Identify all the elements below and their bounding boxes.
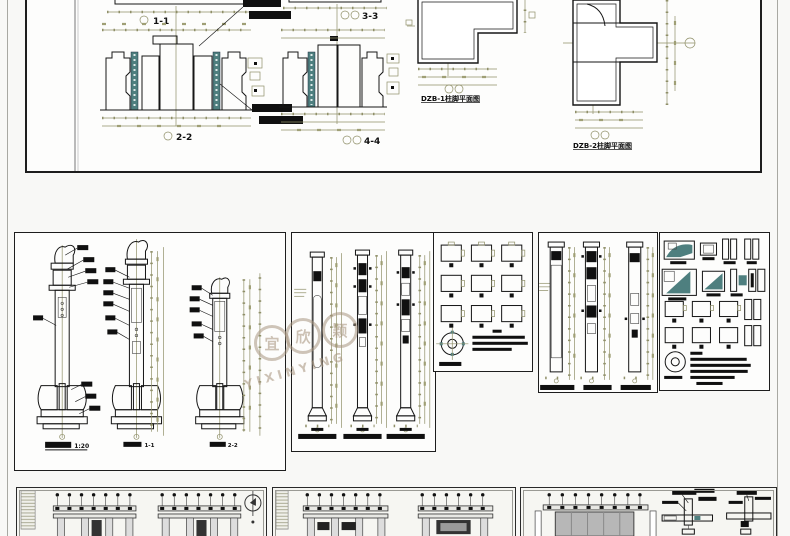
section-3-3-label: 3-3 [362,12,378,22]
top-sheet-drawing: 1-1 3-3 [27,0,760,171]
detail-column-3 [387,250,430,439]
section-4-4-label: 4-4 [364,137,380,147]
panel-section-grid [433,232,533,372]
section-3-3: 3-3 [283,0,387,22]
annotated-detail-1 [662,489,716,534]
section-1-1: 1-1 [107,0,253,27]
elevation-label-1: 1-1 [144,443,154,449]
elevation-fragment-3 [297,493,394,536]
elevation-label-2: 2-2 [228,443,238,449]
annotated-detail-2 [727,491,771,534]
bottom-sheet-1 [16,487,267,536]
detail2-column-1 [540,242,574,390]
plan-dzb1: DZB-1柱脚平面图 [406,0,535,103]
plan-dzb2: DZB-2柱脚平面图 [563,0,695,150]
detail-column-2 [343,250,386,439]
detail2-column-3 [621,242,653,390]
section-1-1-label: 1-1 [153,17,169,27]
joint-round-and-notes [664,352,751,385]
ornate-column-2: 1-1 [103,239,163,449]
bottom-sheet-2-drawing [273,488,515,536]
column-details-drawing-2 [539,233,657,392]
bottom-sheet-3 [520,487,777,536]
bottom-sheet-2 [272,487,516,536]
bottom-sheet-1-drawing [17,488,266,536]
elevation-fragment-5 [527,493,662,536]
plan-dzb1-title: DZB-1柱脚平面图 [421,94,480,103]
elevation-fragment-1 [47,493,142,536]
elevation-scale: 1:20 [74,443,89,450]
detail-column-1 [298,252,341,439]
panel-joint-details [659,232,770,391]
compass-icon [245,491,261,524]
round-section-detail [436,328,468,360]
joint-row-2 [662,269,765,300]
section-grid-cells [441,242,525,328]
joint-row-1 [664,239,759,264]
joint-details-drawing [660,233,769,390]
section-2-2-label: 2-2 [176,133,192,143]
cad-preview-stage: 1-1 3-3 [0,0,790,536]
elevation-fragment-2 [152,493,247,536]
panel-column-elevations: 1:20 [14,232,286,471]
joint-row-3 [665,299,761,322]
section-2-2: 2-2 [100,6,264,143]
column-details-drawing-1 [292,233,435,451]
note-stack-2 [539,283,550,290]
panel-column-details-2 [538,232,658,393]
detail2-column-2 [580,242,611,390]
elevation-fragment-4 [412,493,499,536]
section-4-4: 4-4 [279,4,399,147]
ornate-column-3: 2-2 [190,273,260,449]
fitting-details [248,58,264,96]
fitting-details-right [387,54,399,94]
column-elevations-drawing: 1:20 [15,233,285,470]
note-stack [294,289,306,296]
top-sheet: 1-1 3-3 [25,0,762,173]
ornate-column-1: 1:20 [33,245,100,450]
plan-dzb2-title: DZB-2柱脚平面图 [573,141,632,150]
section-grid-drawing [434,233,532,371]
panel-column-details-1 [291,232,436,452]
joint-row-4 [665,326,761,349]
bottom-sheet-3-drawing [521,488,776,536]
